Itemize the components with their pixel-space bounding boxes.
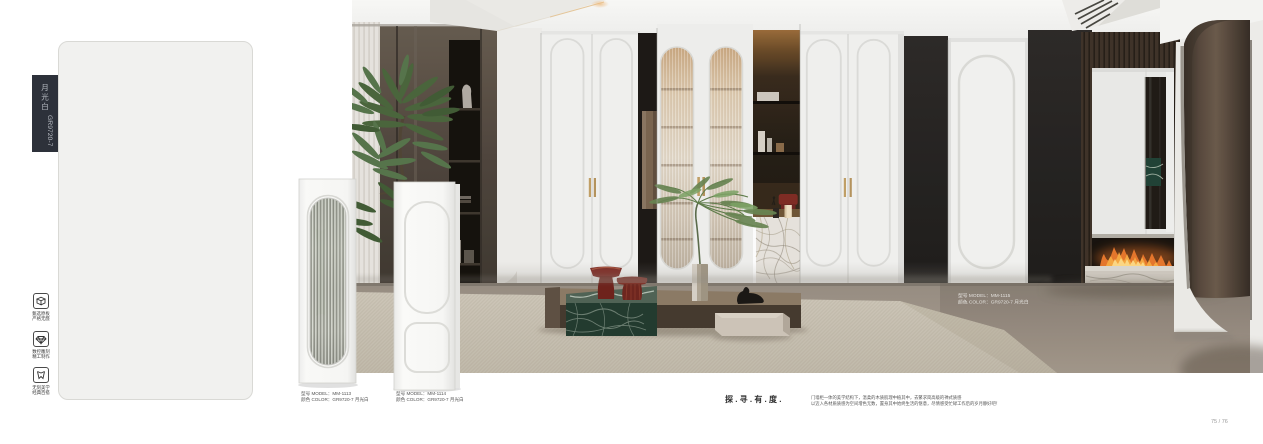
svg-text:白: 白 — [41, 101, 49, 111]
svg-text:GR9720-7: GR9720-7 — [46, 115, 53, 147]
svg-text:光: 光 — [41, 92, 49, 102]
svg-text:月: 月 — [41, 83, 49, 92]
